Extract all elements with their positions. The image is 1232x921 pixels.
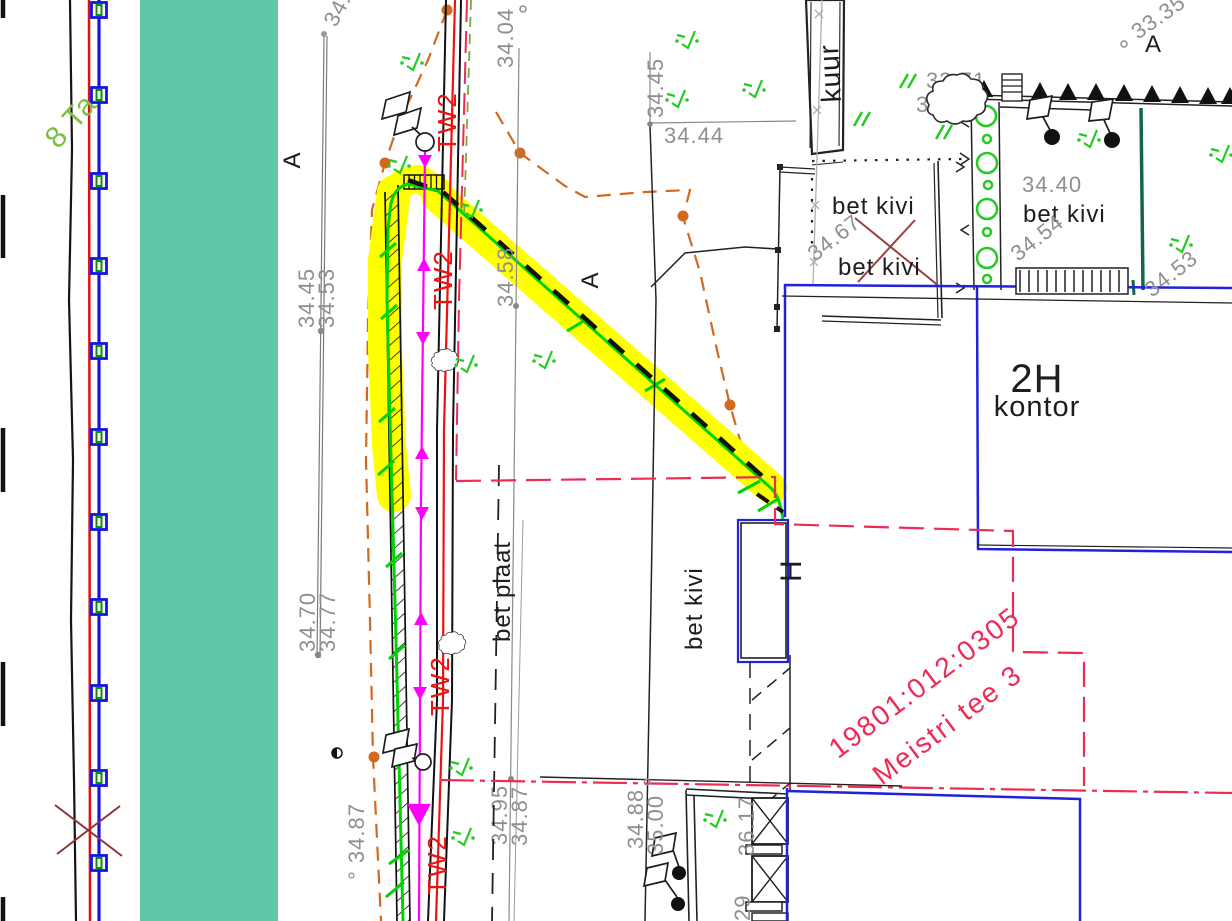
yard-top-edge [780, 167, 815, 174]
kontor-label: kontor [994, 391, 1081, 423]
lamp-post-top-icon [382, 92, 434, 151]
elev-34-40: 34.40 [1022, 172, 1082, 197]
tw2-label-3: TW2 [425, 655, 455, 716]
kontor-black-top [782, 296, 1232, 303]
window-x-2 [752, 856, 788, 902]
survey-leader-line-left [317, 36, 327, 658]
lamp-row-topright [1000, 96, 1120, 148]
lamp-dot-2 [671, 897, 685, 911]
point-34-44 [647, 121, 653, 127]
h-annex-black [741, 523, 786, 658]
half-filled-point-icon [332, 748, 342, 758]
window-x-partial [752, 913, 788, 921]
point-33-35 [1121, 41, 1127, 47]
elev-bracket-3445 [650, 52, 796, 124]
elev-34-04: 34.04 [493, 8, 518, 68]
kontor-black-bottom [977, 545, 1232, 548]
bet-plaat-label: bet plaat [489, 541, 516, 642]
section-a-topright: A [1145, 31, 1162, 58]
h-building-label: H [775, 559, 808, 582]
elev-34-58: 34.58 [493, 247, 518, 307]
ladder-small-icon [1002, 74, 1022, 101]
survey-cross-left-icon [55, 805, 122, 856]
yard-fence-line [651, 247, 777, 287]
h-annex-blue [738, 520, 788, 662]
section-a-left: A [279, 151, 306, 168]
elev-34-45-bracket: 34.45 [643, 58, 668, 118]
hedge-tick-arrows [956, 117, 969, 293]
elev-34-44: 34.44 [664, 123, 724, 148]
elev-36-part: 29 [730, 895, 755, 921]
dark-green-post-line [1141, 108, 1143, 290]
elev-34-77: 34.77 [315, 592, 340, 652]
yard-corner-points [774, 164, 783, 332]
elev-top-cut: 34. [318, 0, 356, 30]
site-plan-stage: 8 Ta A 34. 34.45 34.53 34.70 34.77 ° 34.… [0, 0, 1232, 921]
tw2-label-1: TW2 [432, 91, 462, 152]
teal-road-band [140, 0, 278, 921]
tw2-label-4: TW2 [422, 834, 452, 895]
retaining-wall-hatch [385, 185, 410, 921]
bet-kivi-vertical-label: bet kivi [681, 567, 708, 650]
lamp-dot-1 [672, 866, 686, 880]
hedge-circles [976, 106, 997, 283]
dotted-edge-horizontal [812, 159, 962, 161]
tw2-label-2: TW2 [428, 249, 458, 310]
section-a-mid: A [577, 271, 604, 288]
elev-34-53-right: 34.53 [1140, 245, 1203, 302]
stairs-wide-icon [1016, 268, 1128, 294]
bet-plaat-dashed-edge [492, 465, 499, 921]
veranda-dashed [750, 655, 790, 815]
elev-34-87b: 34.87 [507, 786, 532, 846]
survey-point-top [321, 31, 327, 37]
kuur-label: kuur [813, 43, 847, 103]
map-canvas[interactable]: 8 Ta A 34. 34.45 34.53 34.70 34.77 ° 34.… [0, 0, 1232, 921]
conifer-symbols [387, 31, 1232, 845]
elev-34-53-left: 34.53 [314, 268, 339, 328]
bottom-building-blue [787, 788, 1080, 921]
elev-34-87-deg: ° 34.87 [344, 803, 369, 880]
left-red-line [89, 0, 90, 921]
bet-kivi-label-2: bet kivi [838, 254, 921, 281]
elev-35-00: 35.00 [643, 795, 668, 855]
point-34-04 [520, 6, 526, 12]
elev-36-17: 36.17 [734, 796, 759, 856]
